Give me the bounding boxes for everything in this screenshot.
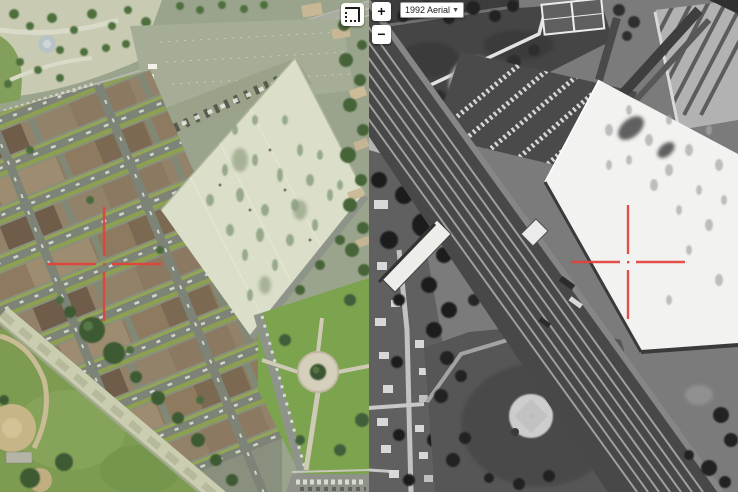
current-aerial-imagery xyxy=(0,0,369,492)
split-aerial-viewer: + − 1992 Aerial ▼ xyxy=(0,0,738,492)
zoom-in-button[interactable]: + xyxy=(372,2,391,21)
panel-current-aerial[interactable] xyxy=(0,0,369,492)
panel-historical-aerial[interactable]: + − 1992 Aerial ▼ xyxy=(369,0,738,492)
dashed-extent-box-icon xyxy=(345,7,360,22)
historical-aerial-imagery xyxy=(369,0,738,492)
layer-year-dropdown[interactable]: 1992 Aerial ▼ xyxy=(400,2,464,18)
zoom-control: + − xyxy=(372,2,391,44)
layer-year-value: 1992 Aerial xyxy=(405,5,450,15)
extent-toggle-button[interactable] xyxy=(341,3,364,26)
zoom-out-button[interactable]: − xyxy=(372,25,391,44)
dropdown-caret-icon: ▼ xyxy=(452,7,459,14)
